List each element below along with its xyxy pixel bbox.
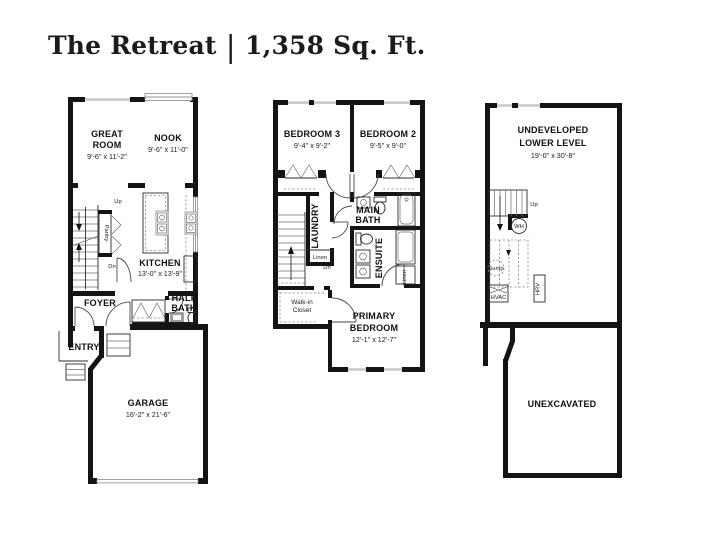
linen-hall-label: Linen (313, 255, 327, 261)
main-floor-labels: GREAT ROOM 9'-6" x 11'-2" NOOK 9'-6" x 1… (68, 129, 196, 419)
great-room-dim: 9'-6" x 11'-2" (87, 152, 127, 161)
great-room-label-line1: GREAT (91, 129, 123, 139)
window-icon (85, 94, 197, 253)
main-bath-label-line2: BATH (355, 215, 380, 225)
entry-label: ENTRY (68, 342, 99, 352)
garage-dim: 16'-2" x 21'-6" (126, 410, 171, 419)
kitchen-label: KITCHEN (139, 258, 180, 268)
half-bath-label-line2: BATH (171, 303, 196, 313)
stairs-icon (277, 212, 305, 288)
water-heater-label: WH (514, 224, 524, 230)
bedroom2-dim: 9'-5" x 9'-0" (370, 141, 407, 150)
undeveloped-label-line1: UNDEVELOPED (518, 125, 589, 135)
entry-porch-steps-icon (59, 331, 88, 380)
primary-bedroom-dim: 12'-1" x 12'-7" (352, 335, 397, 344)
garage-label: GARAGE (128, 398, 169, 408)
unexcavated-label: UNEXCAVATED (528, 399, 597, 409)
front-door-arc-icon (75, 307, 94, 326)
linen-ensuite-label: Linen (402, 270, 408, 284)
primary-bedroom-label-line2: BEDROOM (350, 323, 398, 333)
undeveloped-label-line2: LOWER LEVEL (519, 138, 587, 148)
stairs-icon (72, 205, 98, 290)
stairs-down-label: Dn (323, 265, 330, 271)
upper-floor-plan: BEDROOM 3 9'-4" x 9'-2" BEDROOM 2 9'-5" … (273, 100, 425, 372)
window-icon (497, 103, 540, 108)
kitchen-dim: 13'-0" x 13'-9" (138, 269, 183, 278)
great-room-label-line2: ROOM (93, 140, 122, 150)
coat-closet-bifold-icon (132, 300, 165, 322)
floorplan-page: The Retreat|1,358 Sq. Ft. (0, 0, 720, 540)
nook-label: NOOK (154, 133, 182, 143)
lower-level-plan: UNDEVELOPED LOWER LEVEL 19'-0" x 30'-8" … (480, 103, 622, 478)
floorplan-canvas: GREAT ROOM 9'-6" x 11'-2" NOOK 9'-6" x 1… (0, 0, 720, 540)
bedroom3-label: BEDROOM 3 (284, 129, 340, 139)
garage-steps-icon (107, 334, 130, 356)
undeveloped-dim: 19'-0" x 30'-8" (531, 151, 576, 160)
laundry-label: LAUNDRY (310, 203, 320, 248)
hvac-label: HVAC (491, 295, 507, 301)
walk-in-closet-label-line1: Walk-in (291, 299, 313, 306)
garage-door-icon (97, 480, 198, 483)
foyer-label: FOYER (84, 298, 116, 308)
sump-label: Sump (488, 266, 503, 272)
half-bath-label-line1: HALF (172, 293, 197, 303)
hrv-label: HRV (536, 283, 542, 295)
ensuite-label: ENSUITE (374, 238, 384, 278)
understair-dashed-outline (490, 240, 528, 287)
pantry-label: Pantry (103, 225, 109, 242)
stairs-down-label: Dn (108, 264, 115, 270)
kitchen-island-icon (143, 193, 168, 253)
stairs-up-label: Up (114, 199, 121, 205)
stairs-up-label: Up (530, 202, 537, 208)
walk-in-closet-label-line2: Closet (293, 307, 312, 314)
nook-dim: 9'-6" x 11'-0" (148, 145, 188, 154)
bedroom3-dim: 9'-4" x 9'-2" (294, 141, 331, 150)
bedroom-closet-bifold-icon (284, 165, 415, 189)
main-bath-label-line1: MAIN (356, 205, 380, 215)
main-floor-plan: GREAT ROOM 9'-6" x 11'-2" NOOK 9'-6" x 1… (59, 94, 208, 485)
bedroom2-label: BEDROOM 2 (360, 129, 416, 139)
primary-bedroom-label-line1: PRIMARY (353, 311, 396, 321)
basement-stair-door-arc-icon (117, 258, 131, 282)
